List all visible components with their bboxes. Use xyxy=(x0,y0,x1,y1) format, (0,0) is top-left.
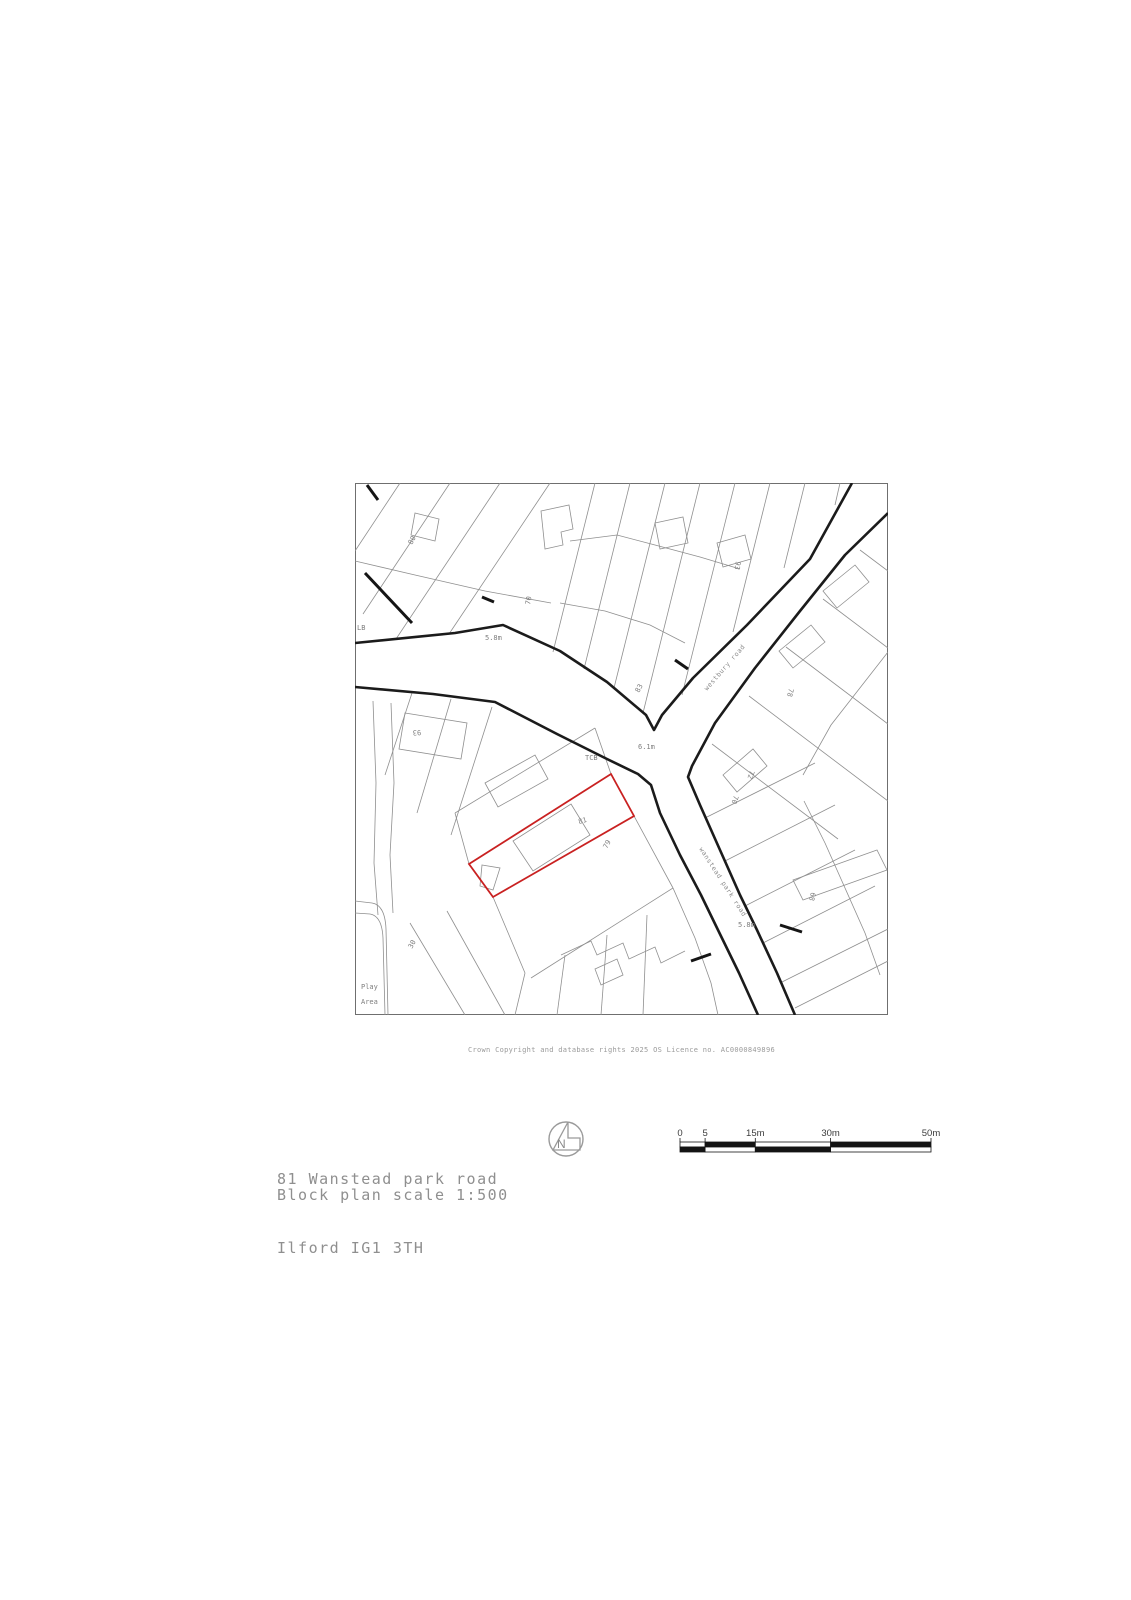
north-arrow: N xyxy=(540,1114,592,1166)
scale-bar-label: 30m xyxy=(821,1128,840,1139)
parcel-line xyxy=(455,728,595,813)
map-label: 72 xyxy=(745,769,755,779)
parcel-line xyxy=(779,625,825,668)
parcel-line xyxy=(835,483,840,505)
parcel-line xyxy=(784,483,805,568)
parcel-line xyxy=(780,929,888,983)
parcel-line xyxy=(449,483,550,634)
parcel-line xyxy=(823,599,888,648)
parcel-line xyxy=(745,850,855,906)
boundary-accent xyxy=(367,485,378,500)
map-label: 81 xyxy=(577,816,587,826)
parcel-line xyxy=(705,763,815,818)
parcel-line xyxy=(451,707,492,835)
scale-bar-segment xyxy=(755,1142,830,1147)
parcel-line xyxy=(601,935,607,1015)
parcel-line xyxy=(655,517,688,549)
parcel-line xyxy=(557,955,565,1015)
map-label: Play xyxy=(361,983,378,991)
parcel-line xyxy=(410,923,465,1015)
map-label: LB xyxy=(357,624,365,632)
scale-bar-segment xyxy=(705,1142,755,1147)
parcel-line xyxy=(584,483,630,669)
north-arrow-icon: N xyxy=(540,1114,592,1166)
parcel-line xyxy=(385,693,412,775)
copyright-text: Crown Copyright and database rights 2025… xyxy=(355,1046,888,1054)
parcel-line xyxy=(803,652,888,775)
parcel-line xyxy=(411,513,439,541)
scale-bar-segment xyxy=(680,1142,705,1147)
boundary-accent xyxy=(482,597,494,602)
scale-bar-segment xyxy=(755,1147,830,1152)
scale-caption: Block plan scale 1:500 xyxy=(277,1186,509,1204)
scale-bar-label: 50m xyxy=(922,1128,941,1139)
site-outline-red xyxy=(469,774,634,897)
map-label: 68 xyxy=(807,892,817,902)
map-label: 93 xyxy=(733,561,742,571)
map-label: 70 xyxy=(524,596,533,606)
scale-bar-segment xyxy=(705,1147,755,1152)
parcel-line xyxy=(804,801,880,975)
map-label: 83 xyxy=(634,683,645,694)
parcel-line xyxy=(455,813,469,864)
scale-bar-svg: 0515m30m50m xyxy=(668,1126,954,1158)
boundary-accent xyxy=(780,925,802,932)
parcel-line xyxy=(723,749,767,792)
parcel-line xyxy=(614,483,665,688)
block-plan-map: LB5.8m80709383westbury roadTCB6.1m937872… xyxy=(355,483,888,1015)
map-label: Area xyxy=(361,998,378,1006)
parcel-line xyxy=(643,915,647,1015)
parcel-line xyxy=(725,805,835,861)
map-label: 93 xyxy=(412,728,421,737)
parcel-line xyxy=(860,550,888,571)
scale-bar-segment xyxy=(680,1147,705,1152)
scale-bar: 0515m30m50m xyxy=(668,1126,954,1158)
parcel-line xyxy=(363,483,450,614)
map-label: 79 xyxy=(602,839,613,850)
scale-bar-generated: 0515m30m50m xyxy=(677,1128,940,1152)
map-red-plot-layer xyxy=(469,774,634,897)
boundary-accent xyxy=(365,573,412,623)
parcel-line xyxy=(390,703,394,913)
map-svg: LB5.8m80709383westbury roadTCB6.1m937872… xyxy=(355,483,888,1015)
address-line-2: Ilford IG1 3TH xyxy=(277,1237,498,1260)
parcel-line xyxy=(355,483,400,551)
road-edge xyxy=(688,513,888,1015)
parcel-line xyxy=(513,804,590,871)
parcel-line xyxy=(733,483,770,632)
parcel-line xyxy=(493,897,525,973)
map-label: 30 xyxy=(407,939,418,950)
parcel-line xyxy=(531,888,673,978)
map-label: 5.8m xyxy=(485,634,502,642)
scale-bar-label: 0 xyxy=(677,1128,682,1139)
parcel-line xyxy=(560,603,685,643)
parcel-line xyxy=(553,483,595,652)
parcel-line xyxy=(595,959,623,985)
parcel-line xyxy=(515,973,525,1015)
map-labels-layer: LB5.8m80709383westbury roadTCB6.1m937872… xyxy=(357,535,817,1006)
parcel-line xyxy=(673,888,718,1015)
north-letter: N xyxy=(557,1137,566,1151)
parcel-line xyxy=(373,701,378,915)
scale-bar-label: 15m xyxy=(746,1128,765,1139)
parcel-line xyxy=(823,565,869,608)
map-label: 70 xyxy=(729,794,739,804)
scale-bar-segment xyxy=(831,1147,931,1152)
parcel-line xyxy=(480,865,500,890)
parcel-line xyxy=(795,961,888,1008)
parcel-line xyxy=(561,941,685,963)
map-label: 6.1m xyxy=(638,743,655,751)
scale-bar-segment xyxy=(831,1142,931,1147)
scale-bar-label: 5 xyxy=(702,1128,707,1139)
map-roads-layer xyxy=(355,483,888,1015)
parcel-line xyxy=(399,713,467,759)
boundary-accent xyxy=(675,660,688,669)
map-label: 5.8m xyxy=(738,921,755,929)
parcel-line xyxy=(396,483,500,639)
page: { "page": { "address_line1": "81 Wanstea… xyxy=(0,0,1131,1600)
road-name-label: westbury road xyxy=(702,643,747,693)
parcel-line xyxy=(485,755,548,807)
parcel-line xyxy=(786,647,888,724)
map-label: TCB xyxy=(585,754,598,762)
parcel-line xyxy=(712,744,838,839)
map-label: 78 xyxy=(785,688,795,698)
parcel-line xyxy=(541,505,573,549)
parcel-line xyxy=(595,728,611,774)
